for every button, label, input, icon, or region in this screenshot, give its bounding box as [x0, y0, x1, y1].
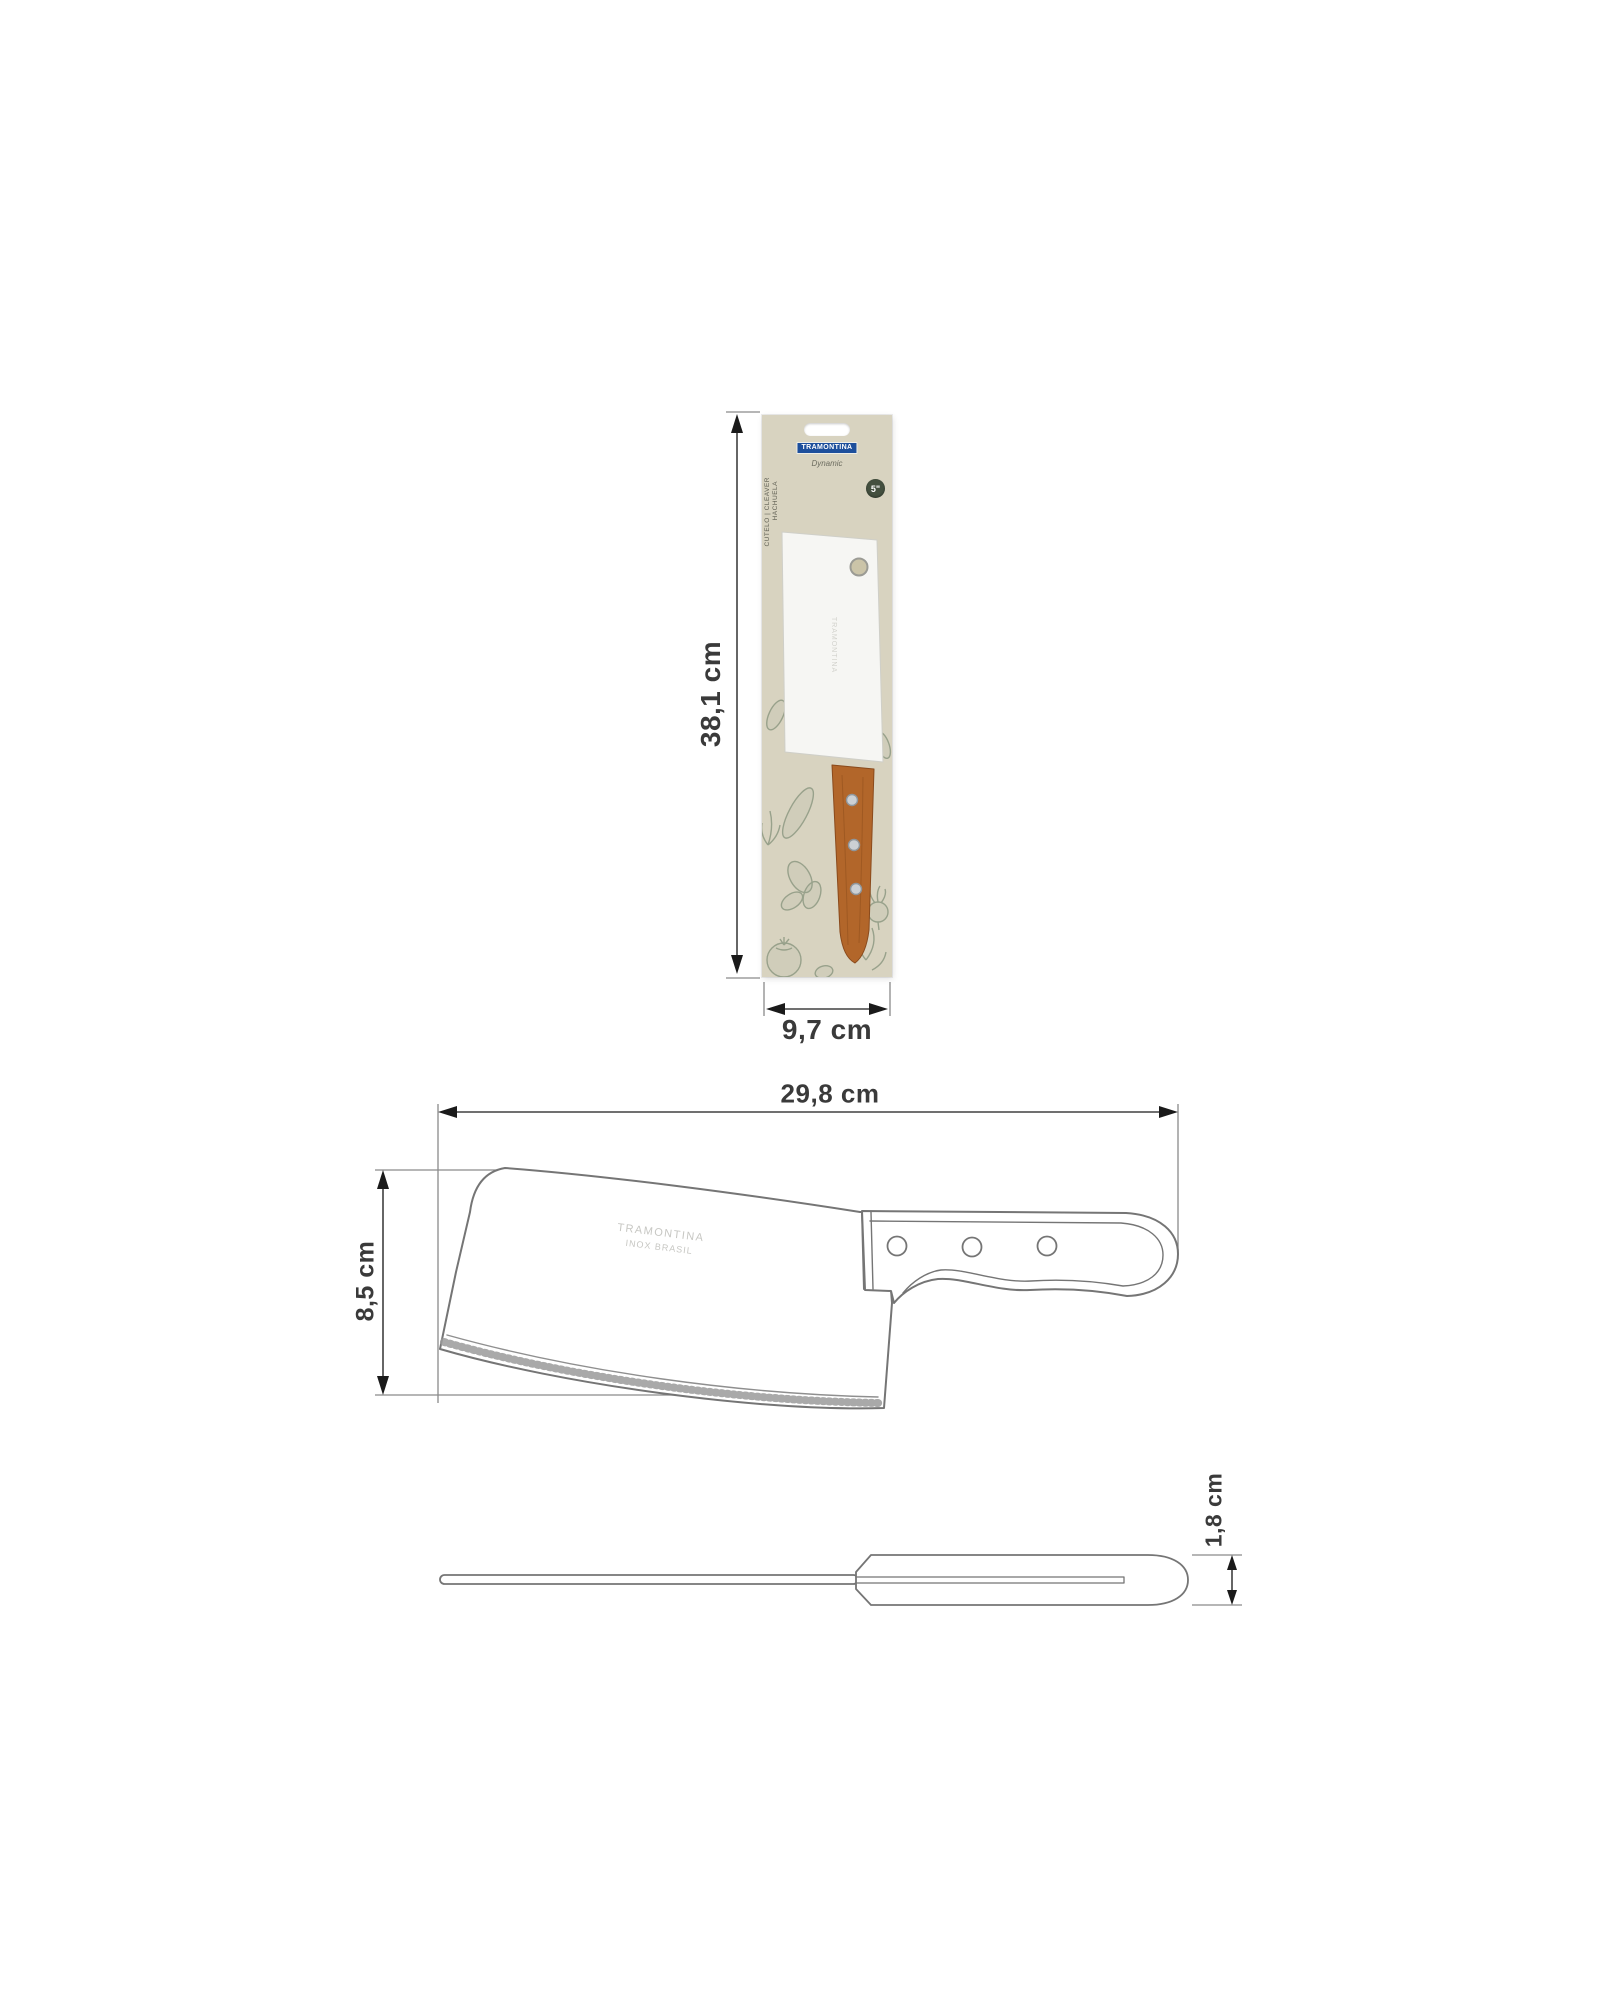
package-artwork: TRAMONTINA	[762, 415, 892, 977]
package-blade-etch: TRAMONTINA	[830, 617, 837, 673]
arrowhead-down	[377, 1376, 389, 1395]
arrowhead-up	[1227, 1555, 1237, 1570]
package-rivet-3	[851, 884, 862, 895]
sprig-icon	[762, 811, 780, 845]
top-blade-outline	[440, 1575, 858, 1584]
category-text-line1: CUTELO | CLEAVER	[764, 477, 771, 547]
arrowhead-left	[438, 1106, 457, 1118]
gourd-icon	[777, 784, 819, 842]
package-card: TRAMONTINA TRAMONTINA Dynamic 5" CUTELO …	[762, 415, 892, 977]
arrowhead-down	[1227, 1590, 1237, 1605]
arrowhead-up	[731, 414, 743, 433]
top-thickness-label: 1,8 cm	[1201, 1473, 1228, 1548]
package-blade-hole	[851, 559, 868, 576]
hang-slot	[804, 423, 850, 436]
cleaver-side-view: TRAMONTINA INOX BRASIL	[440, 1168, 1178, 1408]
package-rivet-2	[849, 840, 860, 851]
product-dimension-sheet: TRAMONTINA INOX BRASIL	[0, 0, 1600, 2000]
brand-logo-text: TRAMONTINA	[801, 444, 852, 451]
side-rivet-1	[888, 1237, 907, 1256]
size-badge: 5"	[866, 479, 885, 498]
side-blade-outline	[440, 1168, 892, 1408]
package-rivet-1	[847, 795, 858, 806]
package-width-label: 9,7 cm	[782, 1014, 872, 1046]
category-text-line2: HACHUELA	[772, 481, 779, 520]
tomato-icon	[767, 943, 801, 977]
arrowhead-right	[1159, 1106, 1178, 1118]
brand-logo: TRAMONTINA	[796, 442, 857, 454]
arrowhead-down	[731, 955, 743, 974]
arrowhead-up	[377, 1170, 389, 1189]
dimension-line-layer: TRAMONTINA INOX BRASIL	[0, 0, 1600, 2000]
package-height-label: 38,1 cm	[695, 641, 727, 747]
product-line-name: Dynamic	[811, 459, 842, 468]
side-rivet-3	[1038, 1237, 1057, 1256]
package-height-dimension	[726, 412, 760, 978]
cleaver-top-view	[440, 1555, 1188, 1605]
top-handle-outline	[856, 1555, 1188, 1605]
side-rivet-2	[963, 1238, 982, 1257]
size-badge-text: 5"	[871, 484, 880, 494]
side-height-label: 8,5 cm	[352, 1241, 381, 1322]
beet-icon	[868, 902, 888, 922]
leaf-icon	[814, 964, 834, 977]
top-thickness-dimension	[1192, 1555, 1242, 1605]
package-width-dimension	[764, 982, 890, 1016]
side-length-label: 29,8 cm	[781, 1079, 880, 1110]
